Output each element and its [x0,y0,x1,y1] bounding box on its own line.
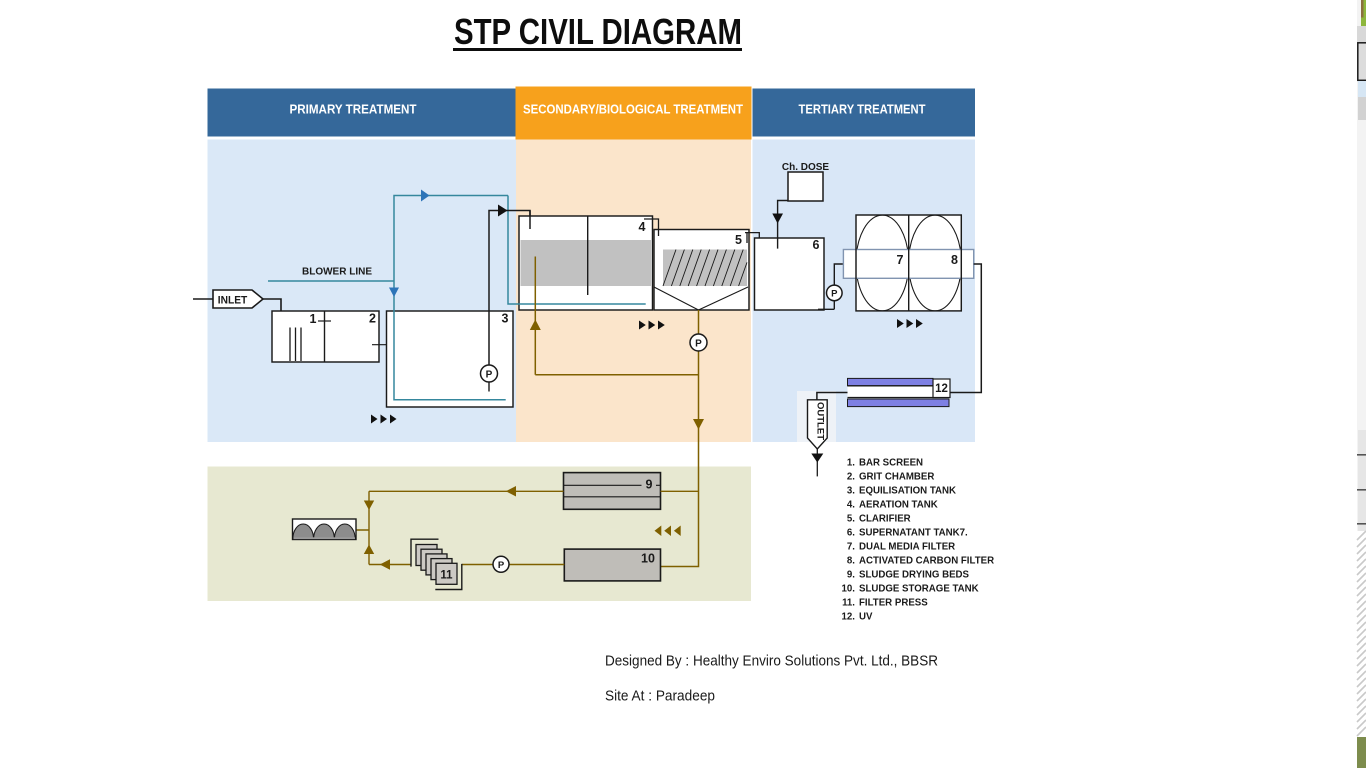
svg-text:7.: 7. [847,542,855,553]
svg-text:6: 6 [813,238,820,252]
svg-text:SLUDGE DRYING BEDS: SLUDGE DRYING BEDS [859,570,970,581]
svg-text:SECONDARY/BIOLOGICAL TREATMENT: SECONDARY/BIOLOGICAL TREATMENT [523,103,743,117]
svg-text:12: 12 [935,383,948,395]
svg-text:7: 7 [897,253,904,267]
svg-text:EQUILISATION TANK: EQUILISATION TANK [859,486,956,497]
svg-text:STP CIVIL DIAGRAM: STP CIVIL DIAGRAM [454,11,742,52]
svg-text:SUPERNATANT TANK7.: SUPERNATANT TANK7. [859,528,968,539]
svg-text:11.: 11. [842,598,855,609]
svg-text:PRIMARY TREATMENT: PRIMARY TREATMENT [290,103,417,117]
svg-text:3: 3 [502,312,509,326]
svg-text:9.: 9. [847,570,855,581]
svg-text:8: 8 [951,253,958,267]
svg-text:P: P [831,289,838,300]
svg-text:GRIT CHAMBER: GRIT CHAMBER [859,472,934,483]
svg-text:UV: UV [859,612,873,623]
svg-text:AERATION TANK: AERATION TANK [859,500,938,511]
svg-text:Ch. DOSE: Ch. DOSE [782,162,830,173]
svg-text:P: P [498,560,505,571]
svg-text:6.: 6. [847,528,855,539]
svg-text:4.: 4. [847,500,855,511]
svg-text:10: 10 [641,552,655,566]
svg-text:2: 2 [369,312,376,326]
svg-text:2.: 2. [847,472,855,483]
svg-text:DUAL MEDIA FILTER: DUAL MEDIA FILTER [859,542,955,553]
svg-text:OUTLET: OUTLET [814,402,825,440]
svg-text:1.: 1. [847,458,855,469]
svg-text:4: 4 [639,220,646,234]
svg-text:INLET: INLET [218,295,248,307]
svg-text:TERTIARY TREATMENT: TERTIARY TREATMENT [799,103,926,117]
svg-text:3.: 3. [847,486,855,497]
svg-text:10.: 10. [842,584,856,595]
svg-text:Designed By : Healthy Enviro S: Designed By : Healthy Enviro Solutions P… [605,654,938,670]
svg-text:1: 1 [310,312,317,326]
svg-text:CLARIFIER: CLARIFIER [859,514,911,525]
svg-text:P: P [695,339,702,350]
svg-text:ACTIVATED CARBON FILTER: ACTIVATED CARBON FILTER [859,556,994,567]
svg-text:P: P [486,370,493,381]
svg-text:12.: 12. [842,612,856,623]
svg-text:9: 9 [646,478,653,492]
svg-text:8.: 8. [847,556,855,567]
svg-text:11: 11 [440,570,453,582]
svg-text:5: 5 [735,233,742,247]
svg-text:FILTER PRESS: FILTER PRESS [859,598,928,609]
svg-text:SLUDGE STORAGE TANK: SLUDGE STORAGE TANK [859,584,979,595]
svg-text:BAR SCREEN: BAR SCREEN [859,458,923,469]
svg-text:Site At : Paradeep: Site At : Paradeep [605,689,715,705]
svg-text:BLOWER LINE: BLOWER LINE [302,267,372,278]
svg-text:5.: 5. [847,514,855,525]
